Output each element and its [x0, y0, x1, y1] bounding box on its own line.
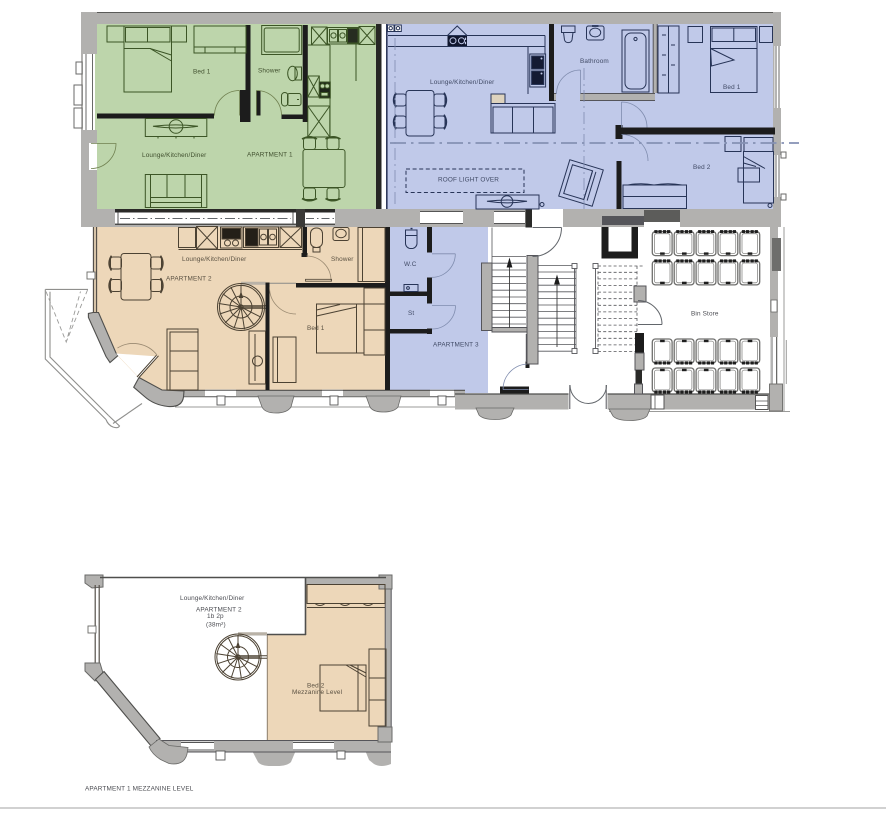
svg-text:Shower: Shower — [331, 256, 354, 263]
svg-text:Shower: Shower — [258, 68, 281, 75]
svg-text:ROOF LIGHT OVER: ROOF LIGHT OVER — [438, 177, 499, 184]
svg-text:Lounge/Kitchen/Diner: Lounge/Kitchen/Diner — [182, 256, 247, 263]
svg-text:Lounge/Kitchen/Diner: Lounge/Kitchen/Diner — [430, 79, 495, 86]
svg-text:APARTMENT 1: APARTMENT 1 — [247, 152, 293, 159]
svg-text:APARTMENT 2: APARTMENT 2 — [166, 276, 212, 283]
svg-text:1b 2p: 1b 2p — [207, 613, 224, 620]
svg-text:Bed 1: Bed 1 — [307, 325, 325, 332]
svg-text:W.C: W.C — [404, 261, 417, 268]
svg-text:APARTMENT 3: APARTMENT 3 — [433, 342, 479, 349]
svg-text:APARTMENT 1 MEZZANINE LEVEL: APARTMENT 1 MEZZANINE LEVEL — [85, 786, 194, 793]
svg-text:Bed 1: Bed 1 — [193, 69, 211, 76]
svg-text:(38m²): (38m²) — [206, 622, 226, 629]
svg-text:Lounge/Kitchen/Diner: Lounge/Kitchen/Diner — [142, 152, 207, 159]
svg-text:Bed 2: Bed 2 — [693, 164, 711, 171]
svg-text:St: St — [408, 310, 414, 317]
svg-text:Lounge/Kitchen/Diner: Lounge/Kitchen/Diner — [180, 595, 245, 602]
svg-text:Bin Store: Bin Store — [691, 311, 719, 318]
svg-text:Bathroom: Bathroom — [580, 58, 609, 65]
svg-text:Bed 1: Bed 1 — [723, 84, 741, 91]
svg-text:Mezzanine Level: Mezzanine Level — [292, 689, 342, 696]
